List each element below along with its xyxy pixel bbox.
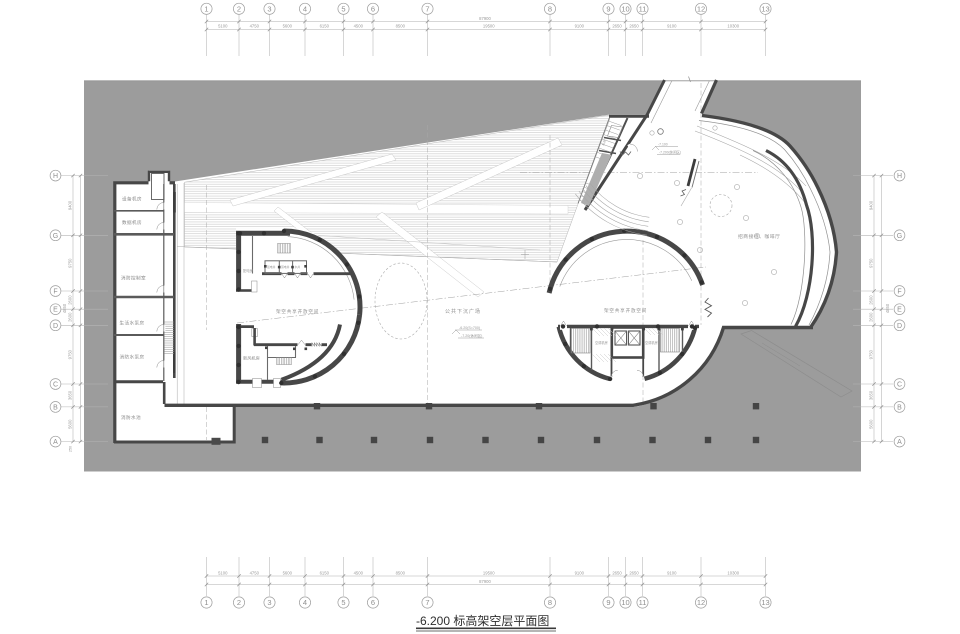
- svg-text:5: 5: [341, 598, 345, 607]
- svg-text:9750: 9750: [869, 349, 874, 359]
- svg-text:架空共享开放空间: 架空共享开放空间: [604, 307, 647, 314]
- svg-text:新风机房: 新风机房: [243, 355, 260, 362]
- svg-text:10300: 10300: [727, 24, 739, 29]
- svg-text:H: H: [53, 173, 58, 180]
- svg-text:公共下沉广场: 公共下沉广场: [445, 308, 481, 315]
- svg-text:配电房: 配电房: [243, 268, 254, 273]
- svg-text:-7.200(休闲区): -7.200(休闲区): [659, 150, 681, 155]
- svg-text:5600: 5600: [283, 570, 293, 575]
- svg-text:-6.200 标高架空层平面图: -6.200 标高架空层平面图: [416, 613, 549, 628]
- svg-text:G: G: [897, 233, 902, 240]
- svg-text:7: 7: [425, 598, 429, 607]
- svg-text:5600: 5600: [869, 419, 874, 429]
- svg-text:1: 1: [204, 5, 208, 14]
- svg-text:消防水池: 消防水池: [121, 414, 141, 421]
- svg-text:设备机房: 设备机房: [122, 196, 142, 203]
- svg-text:B: B: [897, 404, 902, 411]
- svg-text:F: F: [897, 289, 901, 296]
- svg-text:8500: 8500: [396, 570, 406, 575]
- svg-text:9: 9: [606, 598, 610, 607]
- svg-text:9100: 9100: [667, 570, 677, 575]
- svg-text:9750: 9750: [869, 258, 874, 268]
- svg-text:2600: 2600: [869, 295, 874, 305]
- svg-text:5100: 5100: [218, 24, 228, 29]
- svg-text:B: B: [53, 404, 58, 411]
- svg-text:6150: 6150: [320, 24, 330, 29]
- svg-text:12: 12: [697, 5, 705, 14]
- svg-text:F: F: [53, 289, 57, 296]
- svg-text:5600: 5600: [283, 24, 293, 29]
- svg-text:8500: 8500: [396, 24, 406, 29]
- svg-text:2650: 2650: [612, 570, 622, 575]
- svg-text:C: C: [53, 382, 58, 389]
- svg-text:4500: 4500: [354, 24, 364, 29]
- svg-text:3: 3: [267, 598, 271, 607]
- svg-text:5: 5: [341, 5, 345, 14]
- svg-text:数据机房: 数据机房: [122, 219, 142, 226]
- svg-text:生活水泵房: 生活水泵房: [120, 320, 145, 327]
- svg-text:12: 12: [697, 598, 705, 607]
- svg-text:弱电井: 弱电井: [281, 265, 290, 269]
- svg-text:7: 7: [425, 5, 429, 14]
- svg-text:3650: 3650: [869, 390, 874, 400]
- svg-text:9750: 9750: [68, 258, 73, 268]
- svg-text:E: E: [897, 307, 902, 314]
- svg-text:9400: 9400: [68, 200, 73, 210]
- svg-text:2650: 2650: [612, 24, 622, 29]
- svg-text:2650: 2650: [629, 570, 639, 575]
- svg-text:6: 6: [371, 598, 375, 607]
- svg-text:19500: 19500: [483, 24, 495, 29]
- svg-text:-7.100: -7.100: [658, 143, 668, 147]
- svg-text:3: 3: [267, 5, 271, 14]
- svg-text:E: E: [53, 307, 58, 314]
- svg-text:消防控制室: 消防控制室: [121, 275, 146, 282]
- svg-text:8: 8: [548, 598, 552, 607]
- svg-text:11: 11: [639, 5, 647, 14]
- svg-text:8: 8: [548, 5, 552, 14]
- svg-text:4: 4: [303, 598, 307, 607]
- svg-text:4850: 4850: [62, 303, 67, 313]
- svg-text:C: C: [897, 382, 902, 389]
- svg-text:13: 13: [761, 598, 769, 607]
- svg-text:招商接待、咖啡厅: 招商接待、咖啡厅: [738, 233, 780, 240]
- svg-text:G: G: [53, 233, 58, 240]
- svg-text:250: 250: [69, 446, 73, 452]
- svg-text:H: H: [897, 173, 902, 180]
- svg-text:强电井: 强电井: [267, 265, 276, 269]
- svg-text:-6.20(S=700): -6.20(S=700): [459, 326, 480, 330]
- svg-text:10: 10: [621, 5, 629, 14]
- svg-text:2600: 2600: [68, 295, 73, 305]
- svg-text:消防水泵房: 消防水泵房: [120, 354, 145, 361]
- svg-text:4850: 4850: [885, 303, 890, 313]
- svg-text:6150: 6150: [320, 570, 330, 575]
- svg-text:2: 2: [237, 5, 241, 14]
- svg-text:9750: 9750: [68, 349, 73, 359]
- svg-text:2650: 2650: [629, 24, 639, 29]
- svg-text:4750: 4750: [250, 570, 260, 575]
- svg-text:空调机房: 空调机房: [595, 340, 608, 345]
- svg-text:9100: 9100: [575, 24, 585, 29]
- svg-text:9: 9: [606, 5, 610, 14]
- svg-text:2600: 2600: [869, 312, 874, 322]
- svg-text:87900: 87900: [479, 16, 491, 21]
- svg-text:11: 11: [639, 598, 647, 607]
- svg-text:4500: 4500: [354, 570, 364, 575]
- svg-text:10300: 10300: [727, 570, 739, 575]
- svg-text:1: 1: [204, 598, 208, 607]
- svg-text:水井: 水井: [295, 265, 301, 269]
- svg-text:5600: 5600: [68, 419, 73, 429]
- svg-text:架空共享开放空间: 架空共享开放空间: [276, 308, 319, 315]
- svg-text:6: 6: [371, 5, 375, 14]
- svg-text:4: 4: [303, 5, 307, 14]
- svg-text:D: D: [897, 323, 902, 330]
- svg-text:9400: 9400: [869, 200, 874, 210]
- svg-text:9100: 9100: [575, 570, 585, 575]
- svg-text:A: A: [53, 439, 58, 446]
- svg-text:10: 10: [621, 598, 629, 607]
- svg-text:13: 13: [761, 5, 769, 14]
- svg-text:9100: 9100: [667, 24, 677, 29]
- svg-text:5100: 5100: [218, 570, 228, 575]
- svg-text:4750: 4750: [250, 24, 260, 29]
- svg-text:D: D: [53, 323, 58, 330]
- svg-text:19500: 19500: [483, 570, 495, 575]
- svg-text:3650: 3650: [68, 390, 73, 400]
- svg-text:2600: 2600: [68, 312, 73, 322]
- svg-text:2: 2: [237, 598, 241, 607]
- svg-text:-7.20(休闲区): -7.20(休闲区): [461, 333, 482, 338]
- svg-text:A: A: [897, 439, 902, 446]
- svg-text:87900: 87900: [479, 579, 491, 584]
- svg-text:空调机房: 空调机房: [645, 340, 658, 345]
